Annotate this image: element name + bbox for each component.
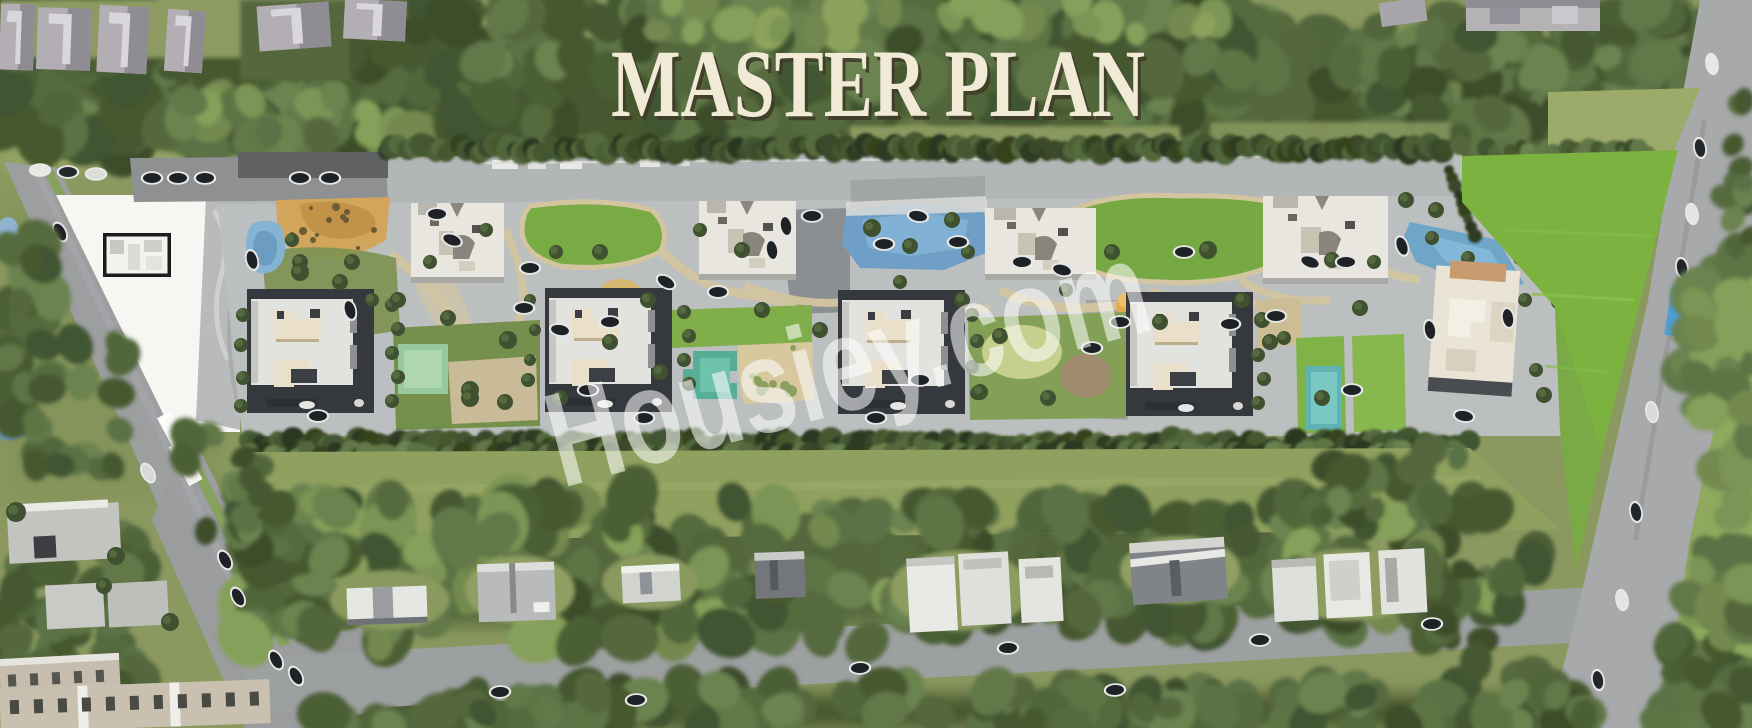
svg-text:MASTER PLAN: MASTER PLAN bbox=[611, 30, 1145, 137]
